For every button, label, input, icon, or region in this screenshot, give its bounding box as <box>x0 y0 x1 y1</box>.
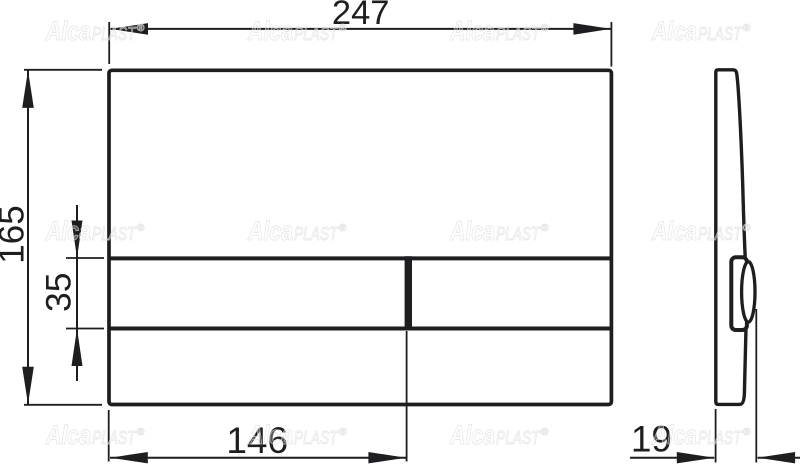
svg-text:165: 165 <box>0 205 32 263</box>
svg-text:PLAST: PLAST <box>92 23 137 44</box>
svg-text:Alca: Alca <box>45 16 91 46</box>
svg-text:®: ® <box>137 23 145 34</box>
svg-text:35: 35 <box>39 272 79 312</box>
